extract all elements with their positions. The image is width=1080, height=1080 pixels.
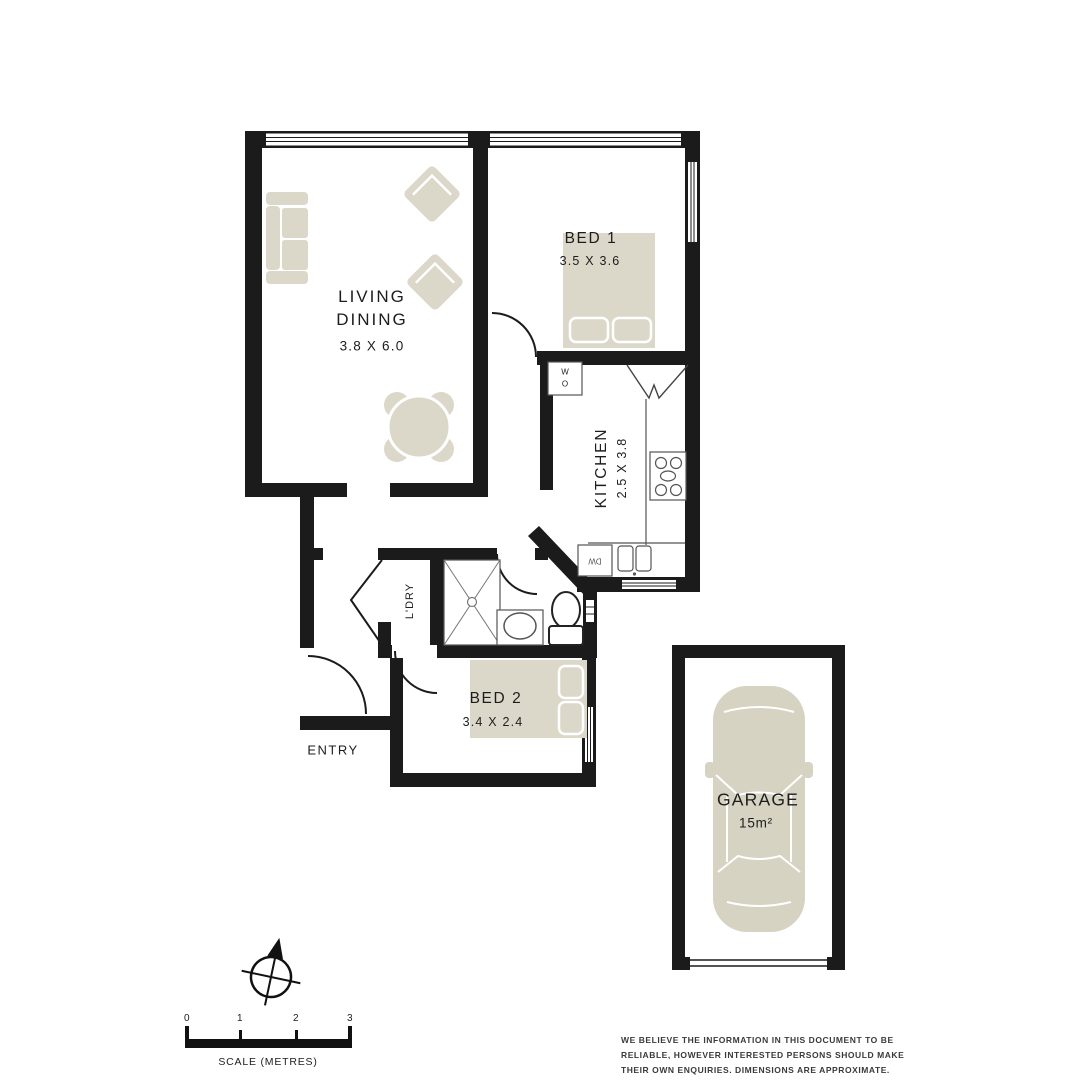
- garage-door: [690, 960, 827, 966]
- vanity: [497, 610, 543, 645]
- floor-plan-graphic: [0, 0, 1080, 1080]
- laundry-bifold-door: [351, 560, 382, 645]
- bed2-label: BED 2: [470, 690, 523, 708]
- dishwasher-label: DW: [588, 557, 601, 566]
- bed1-furniture: [563, 233, 655, 348]
- stove: [650, 452, 686, 500]
- bath-door-arc: [497, 554, 537, 594]
- scale-label-3: 3: [347, 1013, 353, 1024]
- compass-icon: [236, 932, 309, 1012]
- floor-plan-page: LIVING DINING 3.8 X 6.0 BED 1 3.5 X 3.6 …: [0, 0, 1080, 1080]
- oven-label: O: [562, 380, 568, 389]
- scale-caption: SCALE (METRES): [218, 1056, 317, 1068]
- laundry-label: L'DRY: [404, 583, 416, 619]
- kitchen-label-block: KITCHEN 2.5 X 3.8: [592, 428, 632, 509]
- disclaimer-line2: RELIABLE, HOWEVER INTERESTED PERSONS SHO…: [621, 1048, 911, 1063]
- scale-bar-graphic: [185, 1026, 352, 1048]
- entry-label: ENTRY: [307, 743, 358, 758]
- bed1-door-arc: [492, 313, 536, 357]
- garage-area-label: 15m²: [739, 816, 773, 831]
- disclaimer-line1: WE BELIEVE THE INFORMATION IN THIS DOCUM…: [621, 1033, 911, 1048]
- bed1-dims: 3.5 X 3.6: [560, 254, 621, 268]
- living-room-dims: 3.8 X 6.0: [340, 339, 405, 354]
- kitchen-sink: [618, 546, 651, 576]
- kitchen-label: KITCHEN: [592, 428, 612, 509]
- disclaimer-text: WE BELIEVE THE INFORMATION IN THIS DOCUM…: [621, 1033, 911, 1078]
- living-room-label-line2: DINING: [336, 310, 408, 330]
- living-room-label-line1: LIVING: [338, 287, 406, 307]
- bed1-label: BED 1: [565, 230, 618, 248]
- disclaimer-line3: THEIR OWN ENQUIRIES. DIMENSIONS ARE APPR…: [621, 1063, 911, 1078]
- fridge-space: [627, 365, 688, 398]
- kitchen-dims: 2.5 X 3.8: [612, 428, 632, 509]
- scale-label-0: 0: [184, 1013, 190, 1024]
- bed2-dims: 3.4 X 2.4: [463, 715, 524, 729]
- bath-fixtures: [444, 560, 583, 645]
- sofa: [266, 192, 308, 284]
- washer-label: W: [561, 368, 569, 377]
- shower: [444, 560, 500, 645]
- scale-label-2: 2: [293, 1013, 299, 1024]
- armchair-1: [402, 164, 461, 223]
- garage-label: GARAGE: [717, 790, 799, 811]
- entry-door-arc: [308, 656, 366, 714]
- scale-label-1: 1: [237, 1013, 243, 1024]
- toilet: [549, 592, 583, 645]
- north-arrow: [267, 936, 287, 959]
- armchair-2: [405, 252, 464, 311]
- dining-table: [384, 392, 454, 462]
